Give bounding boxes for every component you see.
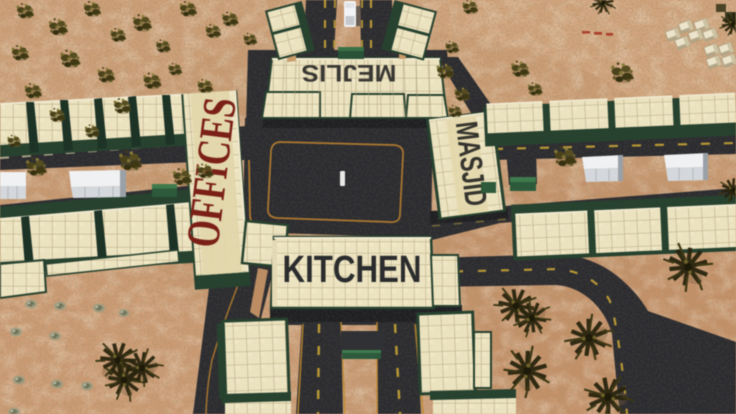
svg-text:KITCHEN: KITCHEN — [283, 249, 422, 291]
svg-text:MEJLIS: MEJLIS — [302, 59, 397, 86]
